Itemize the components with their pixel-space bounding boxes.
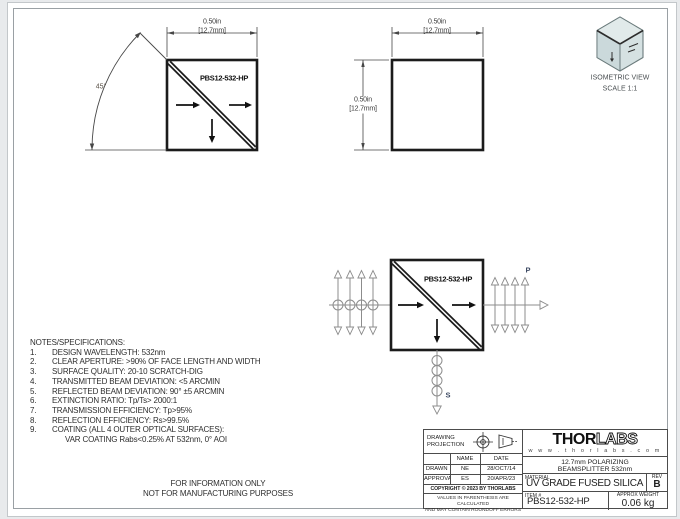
- front-cube-part-label: PBS12-532-HP: [200, 74, 248, 83]
- title-block-left: DRAWING PROJECTION NAME DATE DRAWN NE: [424, 430, 522, 508]
- isometric-view: [597, 17, 643, 71]
- p-polarization-label: P: [525, 266, 530, 275]
- isometric-view-scale: SCALE 1:1: [603, 86, 638, 93]
- revision-cell: REV B: [646, 474, 667, 491]
- angle-dimension: [85, 32, 167, 150]
- material-value: UV GRADE FUSED SILICA: [526, 478, 643, 489]
- note-item: 6.EXTINCTION RATIO: Tp/Ts> 2000:1: [30, 396, 360, 406]
- notes-specifications: NOTES/SPECIFICATIONS: 1.DESIGN WAVELENGT…: [30, 338, 360, 445]
- date-header: DATE: [480, 454, 522, 464]
- note-item: 4.TRANSMITTED BEAM DEVIATION: <5 ARCMIN: [30, 377, 360, 387]
- disclaimer: VALUES IN PARENTHESIS ARE CALCULATED AND…: [424, 494, 522, 514]
- title-block: DRAWING PROJECTION NAME DATE DRAWN NE: [423, 429, 668, 509]
- approval-row: APPROVAL ES 20/APR/23: [424, 474, 522, 484]
- side-width-dim-label: 0.50in[12.7mm]: [423, 19, 451, 36]
- name-header: NAME: [450, 454, 480, 464]
- approval-name: ES: [450, 474, 480, 484]
- title-block-right: THORLABS w w w . t h o r l a b s . c o m…: [522, 430, 667, 508]
- thorlabs-logo-cell: THORLABS w w w . t h o r l a b s . c o m: [523, 430, 667, 457]
- projection-cone-icon: [498, 434, 518, 450]
- note-item: 8.REFLECTION EFFICIENCY: Rs>99.5%: [30, 416, 360, 426]
- note-item-continuation: VAR COATING Rabs<0.25% AT 532nm, 0° AOI: [30, 435, 360, 445]
- information-only-notice: FOR INFORMATION ONLY NOT FOR MANUFACTURI…: [98, 479, 338, 499]
- input-polarization-symbols: [333, 271, 378, 335]
- drawn-label: DRAWN: [424, 464, 450, 474]
- angle-45-label: 45°: [96, 84, 107, 91]
- signature-header-row: NAME DATE: [424, 454, 522, 464]
- engineering-drawing-page: { "drawing": { "part_label": "PBS12-532-…: [0, 0, 680, 519]
- note-item: 3.SURFACE QUALITY: 20-10 SCRATCH-DIG: [30, 367, 360, 377]
- weight-cell: APPROX WEIGHT 0.06 kg: [608, 492, 667, 510]
- notes-title: NOTES/SPECIFICATIONS:: [30, 338, 360, 348]
- transmitted-p-beam: [483, 278, 548, 333]
- drawing-projection-cell: DRAWING PROJECTION: [424, 430, 522, 454]
- rev-value: B: [647, 480, 667, 490]
- weight-value: 0.06 kg: [609, 499, 667, 509]
- projection-label: DRAWING PROJECTION: [427, 435, 467, 448]
- thorlabs-logo: THORLABS: [523, 430, 667, 448]
- thorlabs-website: w w w . t h o r l a b s . c o m: [523, 448, 667, 454]
- drawn-name: NE: [450, 464, 480, 474]
- note-item: 7.TRANSMISSION EFFICIENCY: Tp>95%: [30, 406, 360, 416]
- part-description: 12.7mm POLARIZING BEAMSPLITTER 532nm: [523, 457, 667, 474]
- drawn-row: DRAWN NE 28/OCT/14: [424, 464, 522, 474]
- input-beam: [329, 271, 391, 335]
- note-item: 2.CLEAR APERTURE: >90% OF FACE LENGTH AN…: [30, 357, 360, 367]
- drawn-date: 28/OCT/14: [480, 464, 522, 474]
- note-item: 9.COATING (ALL 4 OUTER OPTICAL SURFACES)…: [30, 425, 360, 435]
- note-item: 5.REFLECTED BEAM DEVIATION: 90° ±5 ARCMI…: [30, 387, 360, 397]
- side-height-dim-label: 0.50in[12.7mm]: [348, 97, 378, 114]
- signature-table: NAME DATE DRAWN NE 28/OCT/14 APPROVAL ES…: [424, 454, 522, 485]
- approval-label: APPROVAL: [424, 474, 450, 484]
- front-view-cube: [85, 27, 257, 150]
- front-width-dim-label: 0.50in[12.7mm]: [198, 19, 226, 36]
- material-cell: MATERIAL UV GRADE FUSED SILICA REV B: [523, 474, 667, 492]
- approval-date: 20/APR/23: [480, 474, 522, 484]
- isometric-view-title: ISOMETRIC VIEW: [591, 75, 650, 82]
- s-polarization-label: S: [445, 391, 450, 400]
- side-view-cube: [354, 27, 483, 150]
- note-item: 1.DESIGN WAVELENGTH: 532nm: [30, 348, 360, 358]
- item-number: PBS12-532-HP: [527, 496, 590, 507]
- reflected-s-beam: [432, 350, 442, 414]
- diagram-cube-part-label: PBS12-532-HP: [424, 275, 472, 284]
- item-cell: ITEM # PBS12-532-HP APPROX WEIGHT 0.06 k…: [523, 492, 667, 510]
- copyright-line: COPYRIGHT © 2023 BY THORLABS: [424, 485, 522, 494]
- projection-target-icon: [472, 432, 494, 452]
